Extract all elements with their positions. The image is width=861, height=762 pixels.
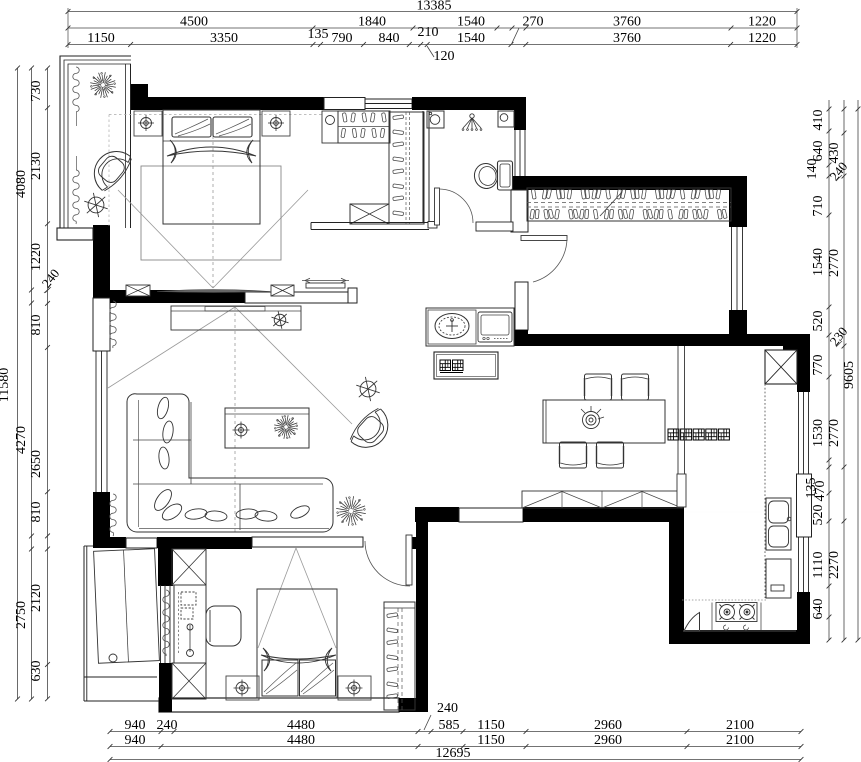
svg-text:520: 520 [811,311,826,332]
svg-text:1220: 1220 [748,15,776,30]
svg-text:270: 270 [523,15,544,30]
svg-text:585: 585 [439,718,460,733]
svg-text:135: 135 [308,27,329,42]
svg-text:2100: 2100 [726,733,754,748]
svg-text:470: 470 [813,481,828,502]
svg-text:140: 140 [805,159,820,180]
svg-text:1110: 1110 [811,552,826,579]
svg-text:3350: 3350 [210,31,238,46]
svg-text:2960: 2960 [594,733,622,748]
svg-text:940: 940 [125,718,146,733]
svg-text:2750: 2750 [14,601,29,629]
svg-text:1150: 1150 [477,733,504,748]
svg-text:790: 790 [332,31,353,46]
svg-text:240: 240 [437,701,458,716]
svg-text:2650: 2650 [29,450,44,478]
svg-text:2960: 2960 [594,718,622,733]
svg-text:520: 520 [811,505,826,526]
svg-text:730: 730 [29,81,44,102]
svg-text:4480: 4480 [287,733,315,748]
svg-text:710: 710 [811,196,826,217]
svg-text:11580: 11580 [0,368,12,402]
svg-text:1540: 1540 [811,248,826,276]
svg-text:810: 810 [29,315,44,336]
svg-text:1220: 1220 [29,243,44,271]
svg-text:2100: 2100 [726,718,754,733]
svg-text:240: 240 [157,718,178,733]
svg-text:3760: 3760 [613,31,641,46]
svg-text:2770: 2770 [827,419,842,447]
svg-text:810: 810 [29,502,44,523]
svg-text:1530: 1530 [811,419,826,447]
svg-text:4270: 4270 [14,426,29,454]
svg-text:1150: 1150 [87,31,114,46]
svg-text:640: 640 [811,141,826,162]
svg-text:410: 410 [811,110,826,131]
svg-text:2120: 2120 [29,584,44,612]
svg-text:1840: 1840 [358,15,386,30]
svg-text:940: 940 [125,733,146,748]
svg-text:2270: 2270 [827,551,842,579]
svg-text:13385: 13385 [417,0,452,14]
svg-text:1540: 1540 [457,15,485,30]
svg-text:2770: 2770 [827,249,842,277]
svg-text:770: 770 [811,355,826,376]
svg-text:210: 210 [418,25,439,40]
svg-text:1150: 1150 [477,718,504,733]
svg-text:120: 120 [434,49,455,64]
svg-text:2130: 2130 [29,152,44,180]
svg-text:3760: 3760 [613,15,641,30]
svg-text:840: 840 [379,31,400,46]
svg-text:640: 640 [811,599,826,620]
svg-text:630: 630 [29,661,44,682]
svg-text:4080: 4080 [14,170,29,198]
svg-text:1540: 1540 [457,31,485,46]
svg-text:12695: 12695 [436,746,471,761]
svg-text:4480: 4480 [287,718,315,733]
svg-text:4500: 4500 [180,15,208,30]
svg-text:9605: 9605 [842,361,857,389]
svg-text:1220: 1220 [748,31,776,46]
